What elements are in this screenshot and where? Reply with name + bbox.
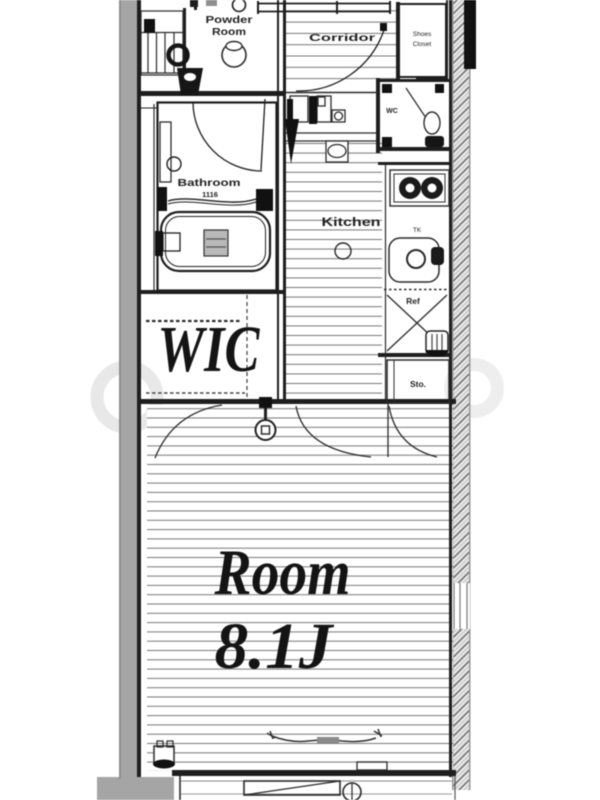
svg-text:WIC: WIC [158,313,261,386]
svg-text:TK: TK [413,227,422,234]
svg-text:1116: 1116 [202,190,218,199]
svg-text:Shoes: Shoes [413,31,432,38]
svg-text:Powder: Powder [206,14,253,26]
svg-text:Sto.: Sto. [410,379,426,389]
svg-text:Room: Room [214,537,351,609]
svg-text:Kitchen: Kitchen [322,217,381,229]
svg-text:Corridor: Corridor [309,32,375,44]
svg-text:Ref: Ref [406,296,420,306]
svg-text:Bathroom: Bathroom [178,178,241,189]
svg-text:Room: Room [212,26,246,38]
svg-text:WC: WC [386,108,398,115]
svg-text:Closet: Closet [413,41,432,48]
svg-text:8.1J: 8.1J [215,610,335,683]
